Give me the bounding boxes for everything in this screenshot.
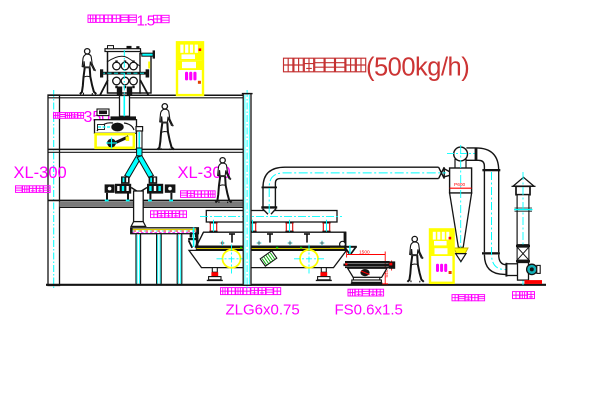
svg-text:(500kg/h): (500kg/h)	[366, 54, 469, 82]
svg-text:P600: P600	[454, 182, 466, 188]
svg-text:ZLG6x0.75: ZLG6x0.75	[226, 302, 300, 319]
svg-text:1.5: 1.5	[137, 13, 155, 30]
svg-text:FS0.6x1.5: FS0.6x1.5	[335, 302, 403, 319]
svg-text:XL-300: XL-300	[14, 164, 67, 182]
svg-text:1500: 1500	[359, 249, 370, 255]
